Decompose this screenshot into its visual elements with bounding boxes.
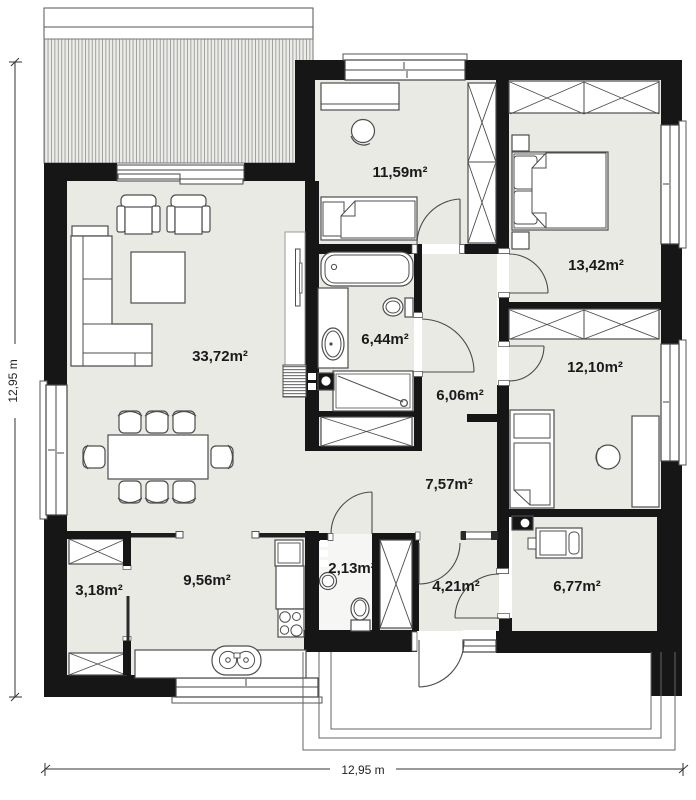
svg-text:9,56m²: 9,56m²: [183, 572, 231, 589]
svg-text:11,59m²: 11,59m²: [372, 164, 427, 181]
svg-text:2,13m²: 2,13m²: [328, 560, 376, 577]
svg-text:4,21m²: 4,21m²: [432, 578, 480, 595]
svg-text:6,06m²: 6,06m²: [436, 387, 484, 404]
svg-text:12,95 m: 12,95 m: [6, 359, 20, 402]
svg-text:33,72m²: 33,72m²: [192, 348, 248, 365]
svg-text:7,57m²: 7,57m²: [425, 476, 473, 493]
svg-text:6,77m²: 6,77m²: [553, 578, 601, 595]
svg-text:12,10m²: 12,10m²: [567, 359, 623, 376]
svg-text:6,44m²: 6,44m²: [361, 331, 409, 348]
svg-text:3,18m²: 3,18m²: [75, 582, 123, 599]
svg-text:13,42m²: 13,42m²: [568, 257, 624, 274]
svg-text:12,95 m: 12,95 m: [341, 763, 384, 777]
